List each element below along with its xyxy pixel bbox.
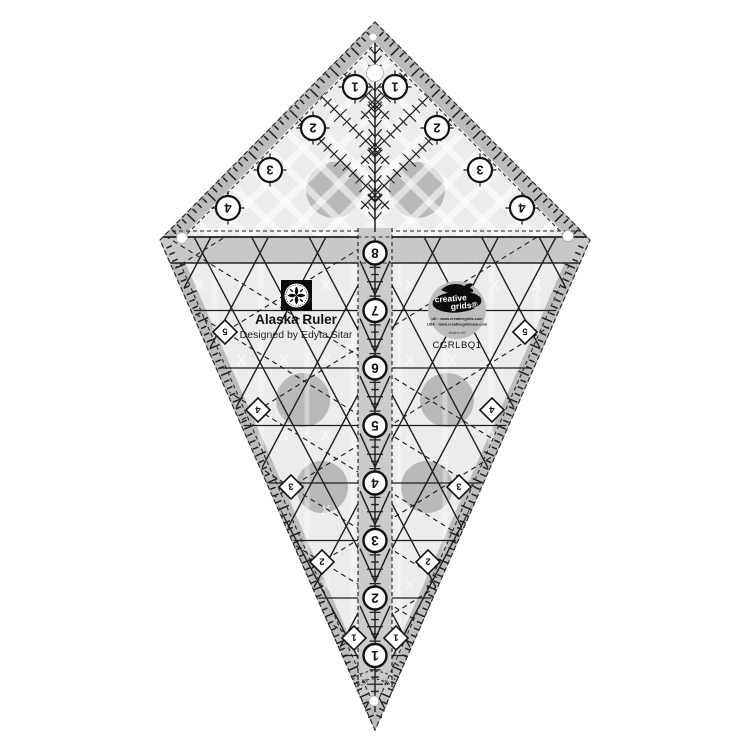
edge-scale-number: 2 <box>319 556 324 567</box>
hole <box>369 696 379 706</box>
top-scale-number: 1 <box>391 80 398 95</box>
top-scale-number: 1 <box>351 80 358 95</box>
center-scale-number: 7 <box>371 303 379 318</box>
product-photo: X X X X X X X X X X X X X X X X X X X X … <box>0 0 750 750</box>
center-scale-number: 6 <box>371 361 379 376</box>
grip-dot <box>276 373 330 427</box>
alaska-ruler: X X X X X X X X X X X X X X X X X X X X … <box>0 0 750 750</box>
center-scale-number: 3 <box>371 533 379 548</box>
top-scale-number: 3 <box>476 163 483 178</box>
designer-credit: Designed by Edyta Sitar <box>240 329 353 341</box>
hole <box>563 231 574 242</box>
brand-url-usa: USA : www.creativegridsusa.com <box>427 323 488 327</box>
brand-url-uk: UK : www.creativegrids.com <box>431 317 483 321</box>
edge-scale-number: 2 <box>425 556 430 567</box>
center-scale-number: 4 <box>371 476 379 491</box>
brand-word-bottom: grids® <box>450 300 478 312</box>
top-scale-number: 3 <box>266 163 273 178</box>
edge-scale-number: 1 <box>393 632 399 643</box>
top-scale-number: 4 <box>518 201 526 216</box>
brand-made-in: Made in UK <box>449 331 467 335</box>
designer-logo <box>281 280 312 311</box>
top-scale-number: 2 <box>433 121 440 136</box>
top-scale-number: 2 <box>309 121 316 136</box>
edge-scale-number: 3 <box>288 481 293 492</box>
center-scale-number: 2 <box>371 591 379 606</box>
edge-scale-number: 4 <box>489 404 495 415</box>
product-title: Alaska Ruler <box>255 312 338 327</box>
edge-scale-number: 5 <box>222 326 228 337</box>
hole <box>369 33 377 41</box>
edge-scale-number: 3 <box>456 481 461 492</box>
top-scale-number: 4 <box>224 201 232 216</box>
edge-scale-number: 5 <box>522 326 528 337</box>
edge-scale-number: 1 <box>351 632 357 643</box>
edge-scale-number: 4 <box>255 404 261 415</box>
center-scale-number: 5 <box>371 418 379 433</box>
product-sku: CGRLBQ1 <box>433 340 482 351</box>
hole <box>177 233 188 244</box>
center-scale-number: 8 <box>371 246 379 261</box>
center-scale-number: 1 <box>371 648 379 663</box>
hole <box>367 65 384 82</box>
